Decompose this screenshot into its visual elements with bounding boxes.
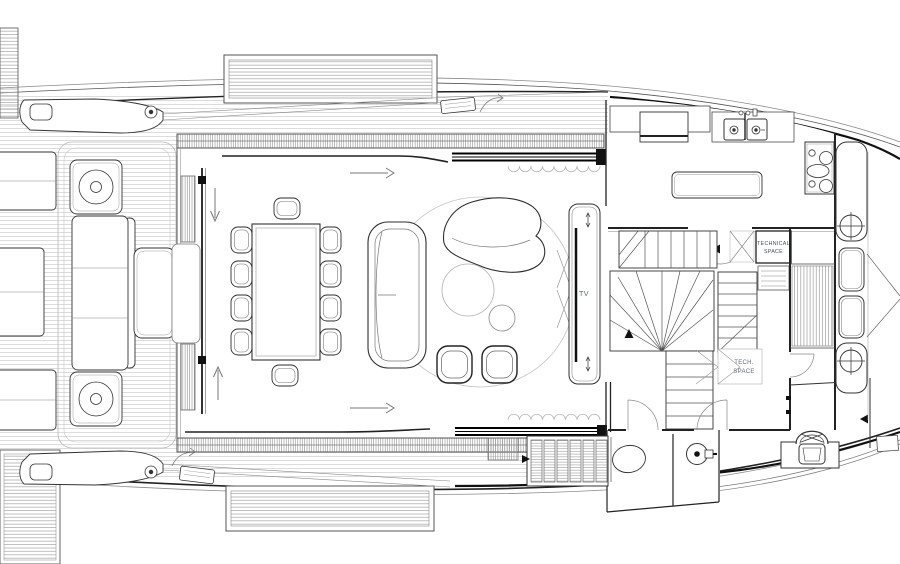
galley-appliance xyxy=(640,112,688,142)
door-direction-arrow-icon xyxy=(860,415,868,424)
hanging-locker xyxy=(792,266,833,346)
door-pocket xyxy=(172,244,200,343)
round-ottoman xyxy=(442,264,494,316)
locker-door xyxy=(583,440,594,482)
pouf xyxy=(482,346,517,383)
bow-fitting xyxy=(877,435,899,451)
door-swing-arc xyxy=(628,400,658,430)
hatch-cutout xyxy=(30,464,52,480)
door-swing-arc xyxy=(790,354,814,377)
burner-icon xyxy=(807,165,829,178)
dining-chair xyxy=(231,227,252,253)
dining-table xyxy=(252,224,320,360)
tech-space-label-2: SPACE xyxy=(733,369,754,375)
stern-box-port xyxy=(0,28,18,118)
dining-chair xyxy=(274,198,300,219)
locker-door xyxy=(596,440,607,482)
locker-door xyxy=(531,440,542,482)
foredeck xyxy=(836,142,900,420)
dining-chair xyxy=(320,227,341,253)
window-mullion-block xyxy=(488,438,518,460)
dining-chair xyxy=(320,261,341,287)
aft-center-sofa xyxy=(72,216,135,370)
windshield-mullion xyxy=(867,254,900,337)
dining-chair xyxy=(231,295,252,321)
deck-window xyxy=(839,248,864,291)
side-table-aft-bottom xyxy=(70,372,122,426)
glazing-post xyxy=(181,344,195,410)
hatch-cutout xyxy=(30,104,52,120)
dining-chair xyxy=(320,295,341,321)
locker-door xyxy=(557,440,568,482)
burner-icon xyxy=(809,150,815,156)
tech-space-label-1: TECH. xyxy=(734,360,754,366)
pouf xyxy=(437,346,472,383)
locker-door xyxy=(570,440,581,482)
locker-door xyxy=(544,440,555,482)
dining-chair xyxy=(320,329,341,355)
burner-icon xyxy=(809,181,815,187)
side-table-aft-top xyxy=(70,160,122,214)
burner-icon xyxy=(820,180,833,193)
burner-icon xyxy=(820,152,833,165)
deck-plan-drawing: TV TECHNICAL SPACE xyxy=(0,0,900,564)
tv-label: TV xyxy=(579,289,589,298)
deck-window xyxy=(839,296,864,338)
side-stair-flight xyxy=(718,272,757,352)
cooktop xyxy=(805,142,834,194)
highback-sofa xyxy=(368,222,426,368)
dining-chair xyxy=(272,365,298,386)
aft-platform-table xyxy=(134,248,175,338)
dining-chair xyxy=(231,261,252,287)
helm-station xyxy=(781,378,899,468)
vent-box xyxy=(758,266,789,290)
galley-island xyxy=(672,172,762,198)
side-table-round xyxy=(489,305,515,331)
double-sink xyxy=(712,109,794,142)
glazing-post xyxy=(181,176,195,242)
technical-space-label-1: TECHNICAL xyxy=(757,241,790,247)
technical-space-label-2: SPACE xyxy=(764,249,783,255)
helm-seat xyxy=(796,431,828,464)
deck-plan-canvas: TV TECHNICAL SPACE xyxy=(0,0,900,564)
dining-chair xyxy=(231,329,252,355)
